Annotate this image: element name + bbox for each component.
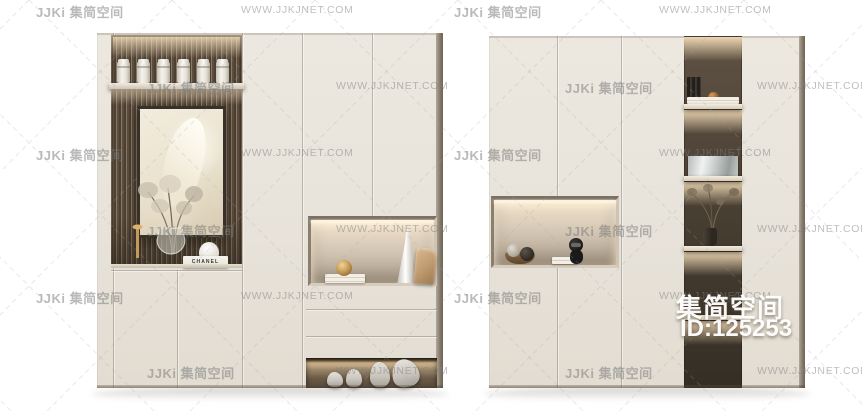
canister-jar bbox=[216, 62, 229, 83]
right-cabinet-base bbox=[489, 385, 805, 388]
left-cabinet-floor-shadow bbox=[92, 387, 448, 401]
right-cabinet-top-edge bbox=[489, 36, 805, 38]
shelf bbox=[684, 104, 742, 109]
shelf bbox=[684, 246, 742, 251]
ninja-figurine-body bbox=[570, 250, 583, 264]
door-seam bbox=[302, 33, 303, 388]
magazine-stack bbox=[687, 97, 739, 104]
watermark-url: WWW.JJKJNET.COM bbox=[241, 4, 354, 16]
led-light-strip bbox=[311, 220, 434, 223]
canister-jar bbox=[177, 62, 190, 83]
right-cabinet-side-panel bbox=[799, 36, 805, 388]
shelf-light-glow bbox=[684, 110, 742, 134]
niche-base bbox=[111, 264, 242, 268]
display-niche: CHANEL bbox=[111, 35, 242, 268]
left-cabinet-base bbox=[97, 385, 443, 388]
led-light-strip bbox=[494, 200, 616, 203]
dried-branches bbox=[684, 182, 742, 232]
door-seam bbox=[372, 33, 373, 216]
canister-jar bbox=[157, 62, 170, 83]
decor-sphere-dark bbox=[520, 247, 534, 261]
right-cabinet-niche bbox=[491, 196, 619, 268]
canister-jar bbox=[137, 62, 150, 83]
canister-jar bbox=[117, 62, 130, 83]
shelf-light-glow bbox=[684, 252, 742, 276]
watermark-logo: JJKi 集简空间 bbox=[36, 2, 124, 21]
door-seam bbox=[621, 36, 622, 388]
shelf-light-glow bbox=[684, 37, 742, 61]
left-cabinet: CHANEL bbox=[97, 33, 443, 388]
shelf-underglow bbox=[111, 89, 242, 105]
door-seam bbox=[177, 270, 178, 388]
middle-display-niche bbox=[308, 216, 437, 286]
canister-jar bbox=[197, 62, 210, 83]
left-cabinet-side-panel bbox=[436, 33, 443, 388]
shelf bbox=[684, 176, 742, 181]
gold-dome-ornament bbox=[336, 260, 352, 276]
item-id-overlay-text: ID:125253 bbox=[680, 315, 792, 343]
drawer-seam bbox=[306, 336, 437, 337]
decor-sphere-light bbox=[507, 244, 520, 257]
door-seam bbox=[111, 270, 242, 271]
drawer-seam bbox=[306, 309, 437, 310]
dark-vase bbox=[703, 228, 717, 246]
watermark-url: WWW.JJKJNET.COM bbox=[659, 4, 772, 16]
mirrored-box bbox=[688, 156, 738, 176]
leather-handbag bbox=[413, 247, 438, 285]
ninja-figurine-visor bbox=[571, 243, 581, 247]
watermark-logo: JJKi 集简空间 bbox=[454, 2, 542, 21]
right-cabinet-floor-shadow bbox=[484, 387, 810, 401]
product-render-canvas: CHANEL bbox=[0, 0, 862, 414]
